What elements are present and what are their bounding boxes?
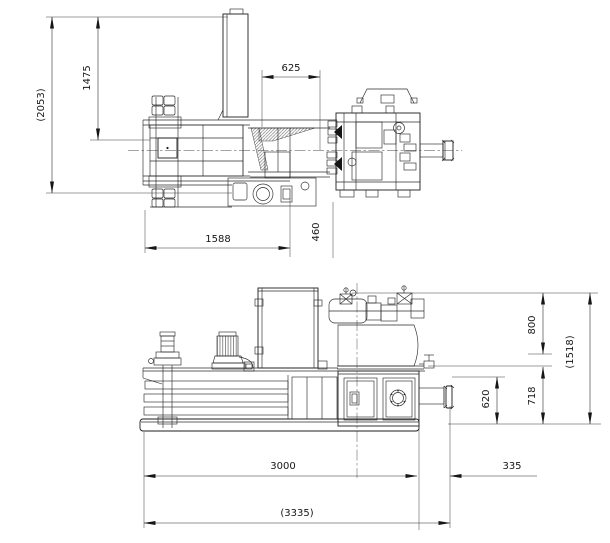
dim-label-body-length: 3000 [270,461,295,472]
undercarriage-plan [228,178,316,206]
side-view: 800 718 (1518) 620 3000 335 (3335) [140,283,601,530]
feed-funnel-hatch [251,128,315,170]
dim-label-outlet-offset: 460 [311,222,322,241]
drawing-sheet: (2053) 1475 625 1588 460 [0,0,610,543]
inspection-port [390,390,406,406]
section-arrow-lower [334,157,342,171]
technical-drawing: (2053) 1475 625 1588 460 [0,0,610,543]
dim-label-hopper-to-press: 625 [281,63,300,74]
top-view-dimensions: (2053) 1475 625 1588 460 [36,17,333,258]
dim-label-discharge-height: 620 [481,389,492,408]
strapping-unit-plan [149,96,232,207]
hydraulic-tank [337,325,424,369]
feed-hopper-plan [218,9,248,120]
top-view-machine [128,9,462,207]
dim-label-chamber-length: 1588 [205,234,230,245]
top-view: (2053) 1475 625 1588 460 [36,9,462,258]
dim-label-overall-depth: (2053) [36,88,47,121]
dim-label-overall-height: (1518) [565,335,576,368]
dim-label-frame-height: 718 [527,386,538,405]
pump-motor [212,332,254,371]
hydraulic-cabinet [338,371,419,426]
base-frame [140,419,419,431]
dim-label-discharge-extension: 335 [502,461,521,472]
dim-label-power-pack-height: 800 [527,315,538,334]
power-pack-plan [327,89,420,197]
discharge-pipe [419,385,454,409]
dim-label-body-depth: 1475 [82,65,93,90]
strapper-tower [149,332,182,428]
dim-label-overall-length: (3335) [280,508,313,519]
feed-hopper-side [255,288,327,369]
side-view-dimensions: 800 718 (1518) 620 3000 335 (3335) [144,293,601,530]
side-view-machine [140,283,454,478]
valve-assembly [329,286,424,323]
